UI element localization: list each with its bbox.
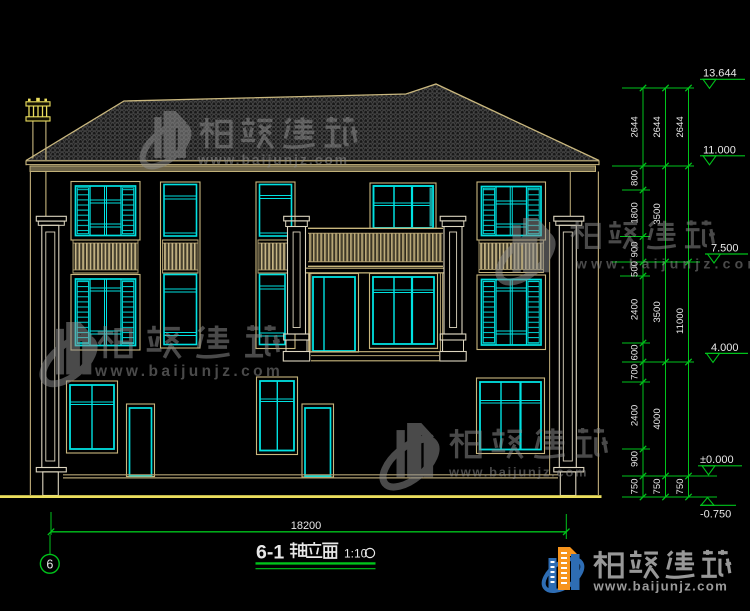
svg-text:750: 750 — [675, 478, 686, 494]
svg-text:1800: 1800 — [630, 202, 641, 223]
svg-text:11000: 11000 — [675, 308, 686, 334]
svg-text:3500: 3500 — [652, 203, 663, 224]
svg-text:3500: 3500 — [652, 301, 663, 322]
svg-text:4000: 4000 — [652, 408, 663, 429]
svg-text:6-1: 6-1 — [256, 542, 284, 564]
svg-text:2644: 2644 — [675, 116, 686, 138]
svg-text:±0.000: ±0.000 — [700, 454, 734, 466]
svg-text:7.500: 7.500 — [711, 243, 739, 255]
svg-text:4.000: 4.000 — [711, 342, 739, 354]
svg-text:11.000: 11.000 — [703, 145, 736, 157]
svg-text:2400: 2400 — [630, 405, 641, 426]
svg-text:2644: 2644 — [652, 116, 663, 138]
svg-text:900: 900 — [630, 451, 641, 467]
svg-text:6: 6 — [46, 558, 53, 572]
svg-text:www.baijunjz.com: www.baijunjz.com — [575, 256, 750, 272]
svg-text:2400: 2400 — [630, 299, 641, 320]
svg-text:700: 700 — [630, 364, 641, 380]
svg-text:600: 600 — [630, 344, 641, 360]
svg-text:1:10: 1:10 — [344, 547, 368, 561]
svg-text:www.baijunjz.com: www.baijunjz.com — [448, 465, 588, 480]
svg-text:13.644: 13.644 — [703, 68, 737, 80]
svg-text:www.baijunjz.com: www.baijunjz.com — [593, 579, 729, 594]
svg-text:www.baijunjz.com: www.baijunjz.com — [94, 363, 283, 380]
svg-text:www.baijunjz.com: www.baijunjz.com — [197, 153, 349, 168]
svg-text:750: 750 — [630, 478, 641, 494]
svg-text:750: 750 — [652, 478, 663, 494]
svg-text:18200: 18200 — [291, 520, 322, 532]
svg-text:800: 800 — [630, 170, 641, 186]
svg-text:-0.750: -0.750 — [700, 509, 731, 521]
svg-text:2644: 2644 — [630, 116, 641, 138]
